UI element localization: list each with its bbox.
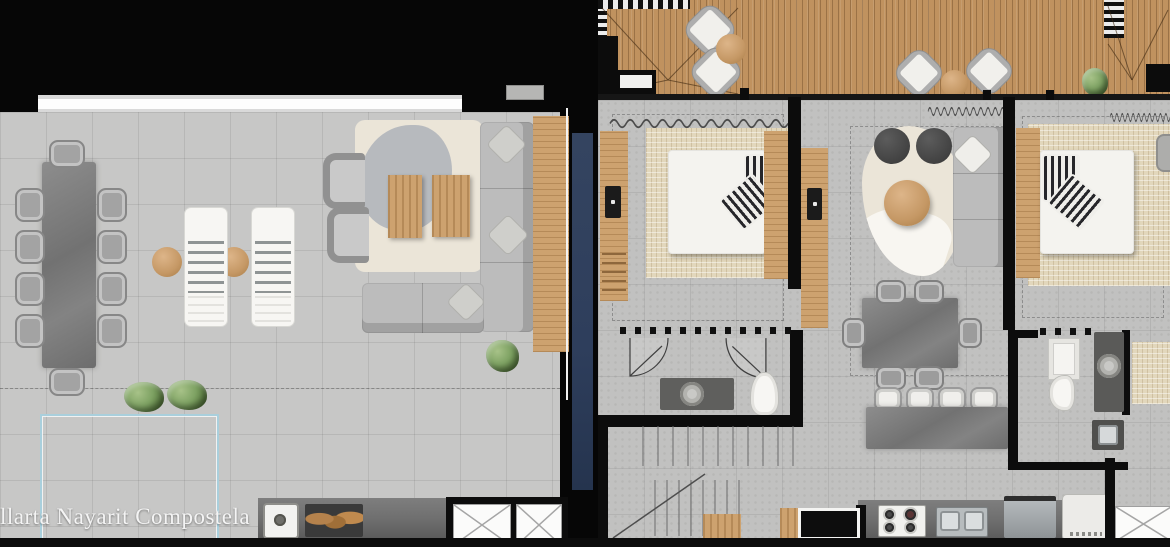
lounger-slats xyxy=(188,241,224,293)
sofa-seam xyxy=(422,283,423,333)
armchair-partial xyxy=(1156,134,1170,172)
dining-chair-small xyxy=(842,318,866,348)
coffee-table xyxy=(388,175,422,238)
floorplan-canvas: llarta Nayarit Compostela xyxy=(0,0,1170,547)
dining-chair xyxy=(15,230,45,264)
dining-chair-small xyxy=(914,280,944,304)
wall-outline xyxy=(566,108,568,400)
bathroom-ticks xyxy=(1040,328,1100,335)
wall-vent xyxy=(506,85,544,100)
interior-wall xyxy=(1008,330,1038,338)
pantry-floor xyxy=(780,508,798,540)
stove-burner xyxy=(906,523,915,532)
sun-lounger xyxy=(251,207,295,327)
interior-wall xyxy=(790,330,803,420)
planter xyxy=(486,340,519,372)
wood-deck-strip xyxy=(533,116,569,352)
deck-bulkhead xyxy=(1146,64,1170,92)
stove xyxy=(878,505,926,537)
lounger-foot xyxy=(255,296,291,322)
boundary-post xyxy=(1046,90,1054,100)
side-table xyxy=(152,247,182,277)
dining-table xyxy=(42,162,96,368)
dining-chair-small xyxy=(876,280,906,304)
watermark-text: llarta Nayarit Compostela xyxy=(0,504,250,530)
tv xyxy=(605,186,621,218)
pouf xyxy=(916,128,952,164)
interior-wall xyxy=(1105,458,1115,540)
pouf xyxy=(874,128,910,164)
dining-chair xyxy=(97,272,127,306)
dining-chair xyxy=(15,188,45,222)
stove-burner xyxy=(885,510,894,519)
refrigerator xyxy=(1062,494,1110,541)
planter xyxy=(124,382,164,412)
console-drawer-lines xyxy=(602,253,626,293)
dining-chair xyxy=(15,272,45,306)
interior-wall xyxy=(1008,330,1018,470)
laundry-basin xyxy=(1098,425,1118,445)
toilet xyxy=(750,372,779,416)
stove-burner xyxy=(905,509,916,520)
dining-chair xyxy=(97,188,127,222)
pantry-door xyxy=(798,508,860,540)
lounger-foot xyxy=(188,296,224,322)
vanity-sink xyxy=(1097,354,1121,378)
dining-chair xyxy=(97,314,127,348)
dining-chair xyxy=(49,368,85,396)
armchair xyxy=(327,207,369,263)
kitchen-sink xyxy=(936,507,988,537)
sofa-seam xyxy=(953,173,1009,174)
sofa-seam xyxy=(480,262,534,263)
outdoor-sink xyxy=(263,503,299,539)
shower-tray xyxy=(1048,338,1080,380)
lounger-slats xyxy=(255,241,291,293)
bottom-wall-band xyxy=(0,538,1170,547)
curtain-line xyxy=(1110,110,1170,120)
sofa-seam xyxy=(953,219,1009,220)
interior-wall xyxy=(788,97,801,289)
headboard xyxy=(764,131,790,279)
dining-chair-small xyxy=(958,318,982,348)
toilet xyxy=(1049,375,1075,411)
interior-wall xyxy=(1008,462,1128,470)
armchair xyxy=(323,153,365,209)
curtain-line xyxy=(610,116,788,126)
elevator-shaft xyxy=(1115,506,1170,542)
boundary-post xyxy=(983,90,991,100)
sink-bowl xyxy=(964,511,984,531)
window-band xyxy=(38,95,462,112)
bathroom-ticks xyxy=(620,327,800,334)
dining-chair xyxy=(15,314,45,348)
dishwasher xyxy=(1004,496,1056,538)
deck-side-table xyxy=(941,70,968,97)
tv-console xyxy=(801,148,828,328)
sink-bowl xyxy=(940,511,960,531)
sofa-seam xyxy=(480,188,534,189)
planter xyxy=(167,380,207,410)
tv xyxy=(807,188,822,220)
grill xyxy=(305,504,363,537)
headboard xyxy=(1016,128,1040,278)
deck-bulkhead-ledge xyxy=(620,75,652,88)
sink-basin xyxy=(274,514,286,526)
stair-landing-wood xyxy=(703,514,741,538)
dining-chair xyxy=(97,230,127,264)
round-coffee-table xyxy=(884,180,930,226)
interior-wall xyxy=(1003,97,1015,330)
stove-burner xyxy=(885,523,894,532)
kitchen-island xyxy=(866,407,1008,449)
hallway-rug xyxy=(1132,342,1170,404)
boundary-post xyxy=(740,88,749,100)
curtain-line xyxy=(928,104,1008,114)
divider-navy-panel xyxy=(572,133,593,490)
deck-planter xyxy=(1082,68,1108,96)
vanity-sink xyxy=(680,382,704,406)
sun-lounger xyxy=(184,207,228,327)
dining-table-right xyxy=(862,298,958,368)
dining-chair xyxy=(49,140,85,168)
coffee-table xyxy=(432,175,470,237)
deck-side-table xyxy=(716,34,746,64)
laundry-sink xyxy=(1092,420,1124,450)
door-swing xyxy=(628,336,670,378)
